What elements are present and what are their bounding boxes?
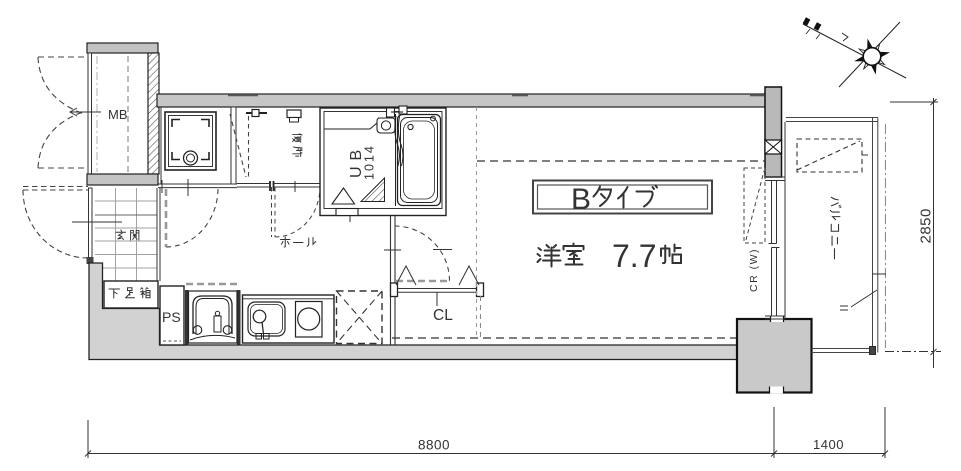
svg-text:CR (W): CR (W) [748,248,760,292]
svg-text:1014: 1014 [363,144,377,180]
svg-text:7.7: 7.7 [612,238,656,274]
svg-text:8800: 8800 [418,438,450,453]
svg-text:CL: CL [433,307,453,324]
svg-text:PS: PS [162,309,181,325]
svg-text:1400: 1400 [813,437,844,452]
svg-text:MB: MB [108,107,128,122]
svg-text:B: B [571,183,591,216]
svg-text:2850: 2850 [918,208,935,243]
